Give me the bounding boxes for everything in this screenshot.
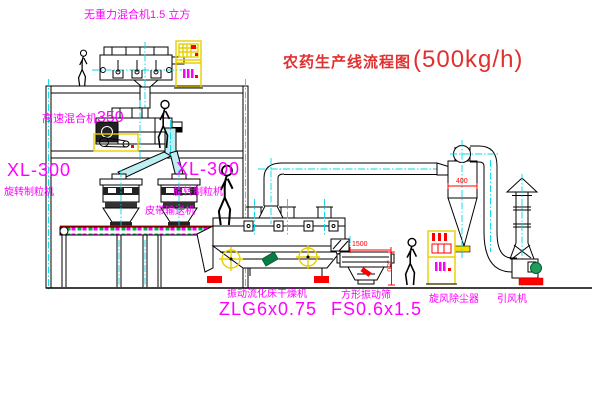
title-capacity: (500kg/h) xyxy=(413,46,523,74)
diagram-title: 农药生产线流程图 (500kg/h) xyxy=(283,46,523,74)
cyclone-drawing xyxy=(437,140,477,258)
label-fan: 引风机 xyxy=(497,295,527,305)
dimension-sieve-length: 1500 xyxy=(352,241,368,248)
label-granulator-right-name: 旋转制粒机 xyxy=(173,188,223,198)
label-granulator-left-name: 旋转制粒机 xyxy=(4,188,54,198)
label-belt-conveyor: 皮带输送机 xyxy=(145,207,195,217)
fan-motor-icon xyxy=(531,263,542,274)
label-high-speed-mixer-name: 高速混合机 xyxy=(42,113,97,125)
person-figure xyxy=(79,50,87,86)
label-granulator-left-model: XL-300 xyxy=(7,161,71,179)
title-text: 农药生产线流程图 xyxy=(283,51,411,72)
label-sieve-model: FS0.6x1.5 xyxy=(331,300,422,318)
belt-conveyor-drawing xyxy=(60,226,218,287)
label-high-speed-mixer-size: 350 xyxy=(97,109,124,126)
gravity-mixer-drawing xyxy=(92,47,184,87)
granulator-left-drawing xyxy=(100,170,142,228)
person-figure xyxy=(406,238,417,285)
label-cyclone: 旋风除尘器 xyxy=(429,295,479,305)
dimension-cyclone-width: 400 xyxy=(456,178,468,185)
control-cabinet-right xyxy=(426,231,457,284)
cad-flow-diagram: 农药生产线流程图 (500kg/h) 无重力混合机1.5 立方 高速混合机350… xyxy=(0,0,600,403)
label-granulator-right-model: XL-300 xyxy=(176,160,240,178)
label-gravity-mixer: 无重力混合机1.5 立方 xyxy=(84,10,190,21)
label-dryer-model: ZLG6x0.75 xyxy=(219,300,317,318)
label-high-speed-mixer: 高速混合机350 xyxy=(42,110,124,126)
dimension-sieve-height: 350 xyxy=(385,260,392,272)
fan-drawing xyxy=(512,259,543,285)
